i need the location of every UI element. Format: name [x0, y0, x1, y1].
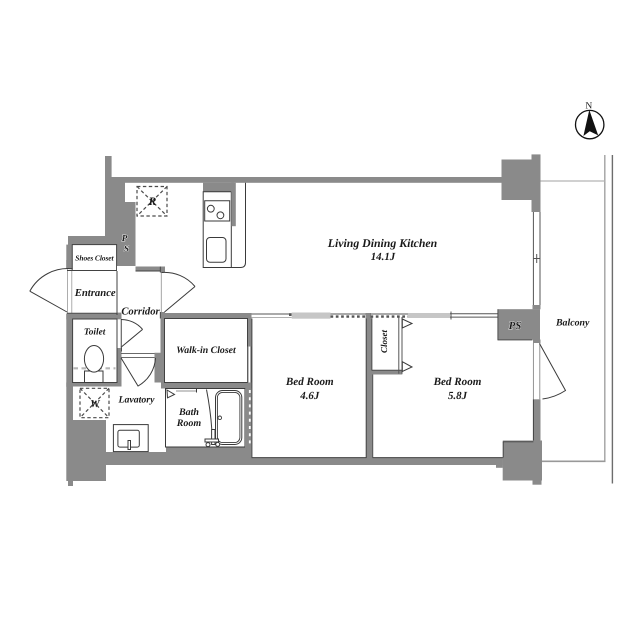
svg-text:Balcony: Balcony [555, 317, 590, 328]
svg-text:W: W [90, 399, 100, 410]
svg-text:Bed Room: Bed Room [285, 376, 334, 388]
svg-text:Bath: Bath [178, 407, 199, 418]
svg-text:Lavatory: Lavatory [118, 395, 156, 406]
svg-text:Living Dining Kitchen: Living Dining Kitchen [327, 236, 437, 250]
svg-text:PS: PS [509, 320, 522, 332]
svg-text:Room: Room [176, 418, 202, 429]
svg-text:4.6J: 4.6J [299, 390, 320, 402]
svg-text:Entrance: Entrance [74, 287, 116, 299]
svg-text:5.8J: 5.8J [448, 390, 468, 402]
svg-text:14.1J: 14.1J [371, 251, 396, 263]
svg-text:S: S [124, 244, 129, 254]
svg-text:P: P [122, 233, 128, 243]
svg-text:Walk-in Closet: Walk-in Closet [176, 345, 236, 356]
svg-text:Toilet: Toilet [84, 328, 106, 338]
svg-text:Closet: Closet [379, 330, 389, 354]
svg-text:R: R [148, 196, 157, 208]
svg-text:Corridor: Corridor [121, 306, 160, 317]
svg-text:Shoes Closet: Shoes Closet [75, 253, 114, 262]
svg-text:Bed Room: Bed Room [433, 376, 482, 388]
svg-text:N: N [585, 102, 592, 112]
